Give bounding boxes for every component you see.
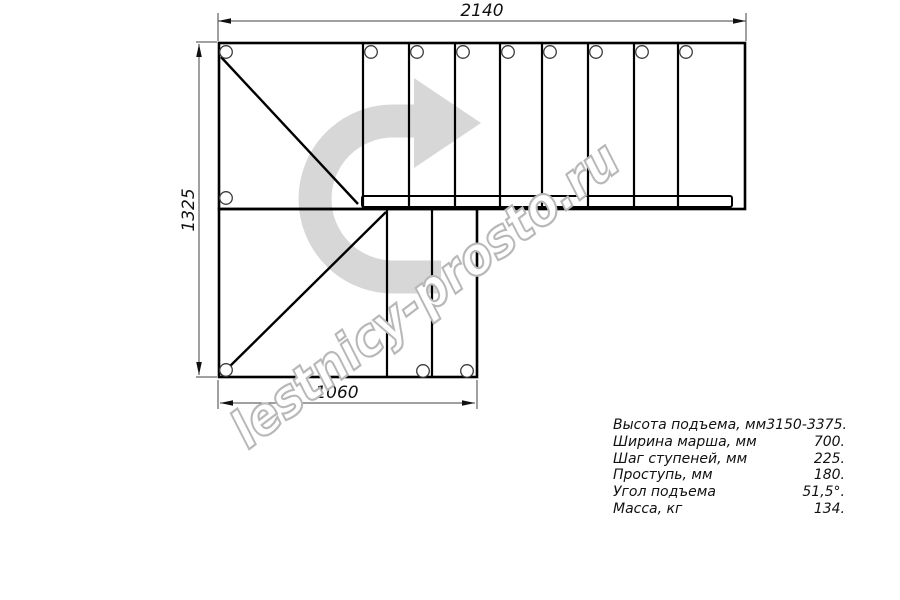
direction-arrow-head	[414, 78, 481, 168]
spec-row-tread: Проступь, мм 180.	[613, 467, 845, 484]
watermark-text: lestnicy-prosto.ru	[220, 130, 631, 461]
mount-hole	[590, 46, 603, 59]
spec-value: 51,5°.	[802, 484, 845, 501]
mount-hole	[636, 46, 649, 59]
spec-row-flight-width: Ширина марша, мм 700.	[613, 434, 845, 451]
dimension-arrowhead	[218, 18, 231, 24]
spec-row-step-pitch: Шаг ступеней, мм 225.	[613, 451, 845, 468]
mount-hole	[502, 46, 515, 59]
spec-value: 134.	[814, 501, 845, 518]
spec-label: Шаг ступеней, мм	[613, 451, 747, 468]
mount-hole	[544, 46, 557, 59]
spec-value: 700.	[814, 434, 845, 451]
mount-hole	[220, 46, 233, 59]
spec-row-height: Высота подъема, мм 3150-3375.	[613, 417, 845, 434]
spec-value: 180.	[814, 467, 845, 484]
dimensions	[196, 13, 746, 409]
spec-value: 225.	[814, 451, 845, 468]
staircase-drawing-page: 2140 1325 1060 lestnicy-prosto.ru Высота…	[0, 0, 900, 600]
spec-label: Ширина марша, мм	[613, 434, 757, 451]
dimension-arrowhead	[733, 18, 746, 24]
dimension-arrowhead	[196, 362, 202, 375]
mount-hole	[411, 46, 424, 59]
upper-flight-outline	[219, 43, 745, 209]
spec-label: Масса, кг	[613, 501, 682, 518]
mount-hole	[457, 46, 470, 59]
dimension-top-label: 2140	[460, 1, 503, 21]
mount-hole	[220, 364, 233, 377]
mount-hole	[461, 365, 474, 378]
mount-hole	[680, 46, 693, 59]
staircase-outline	[219, 43, 745, 377]
spec-row-mass: Масса, кг 134.	[613, 501, 845, 518]
dimension-left-label: 1325	[179, 188, 199, 231]
dimension-arrowhead	[462, 400, 475, 406]
mount-hole	[365, 46, 378, 59]
spec-row-angle: Угол подъема 51,5°.	[613, 484, 845, 501]
specifications-table: Высота подъема, мм 3150-3375. Ширина мар…	[613, 417, 845, 518]
spec-label: Проступь, мм	[613, 467, 713, 484]
spec-label: Высота подъема, мм	[613, 417, 766, 434]
dimension-arrowhead	[196, 44, 202, 57]
dimension-left	[196, 42, 217, 377]
spec-value: 3150-3375.	[766, 417, 847, 434]
mount-hole	[417, 365, 430, 378]
mount-hole	[220, 192, 233, 205]
spec-label: Угол подъема	[613, 484, 716, 501]
